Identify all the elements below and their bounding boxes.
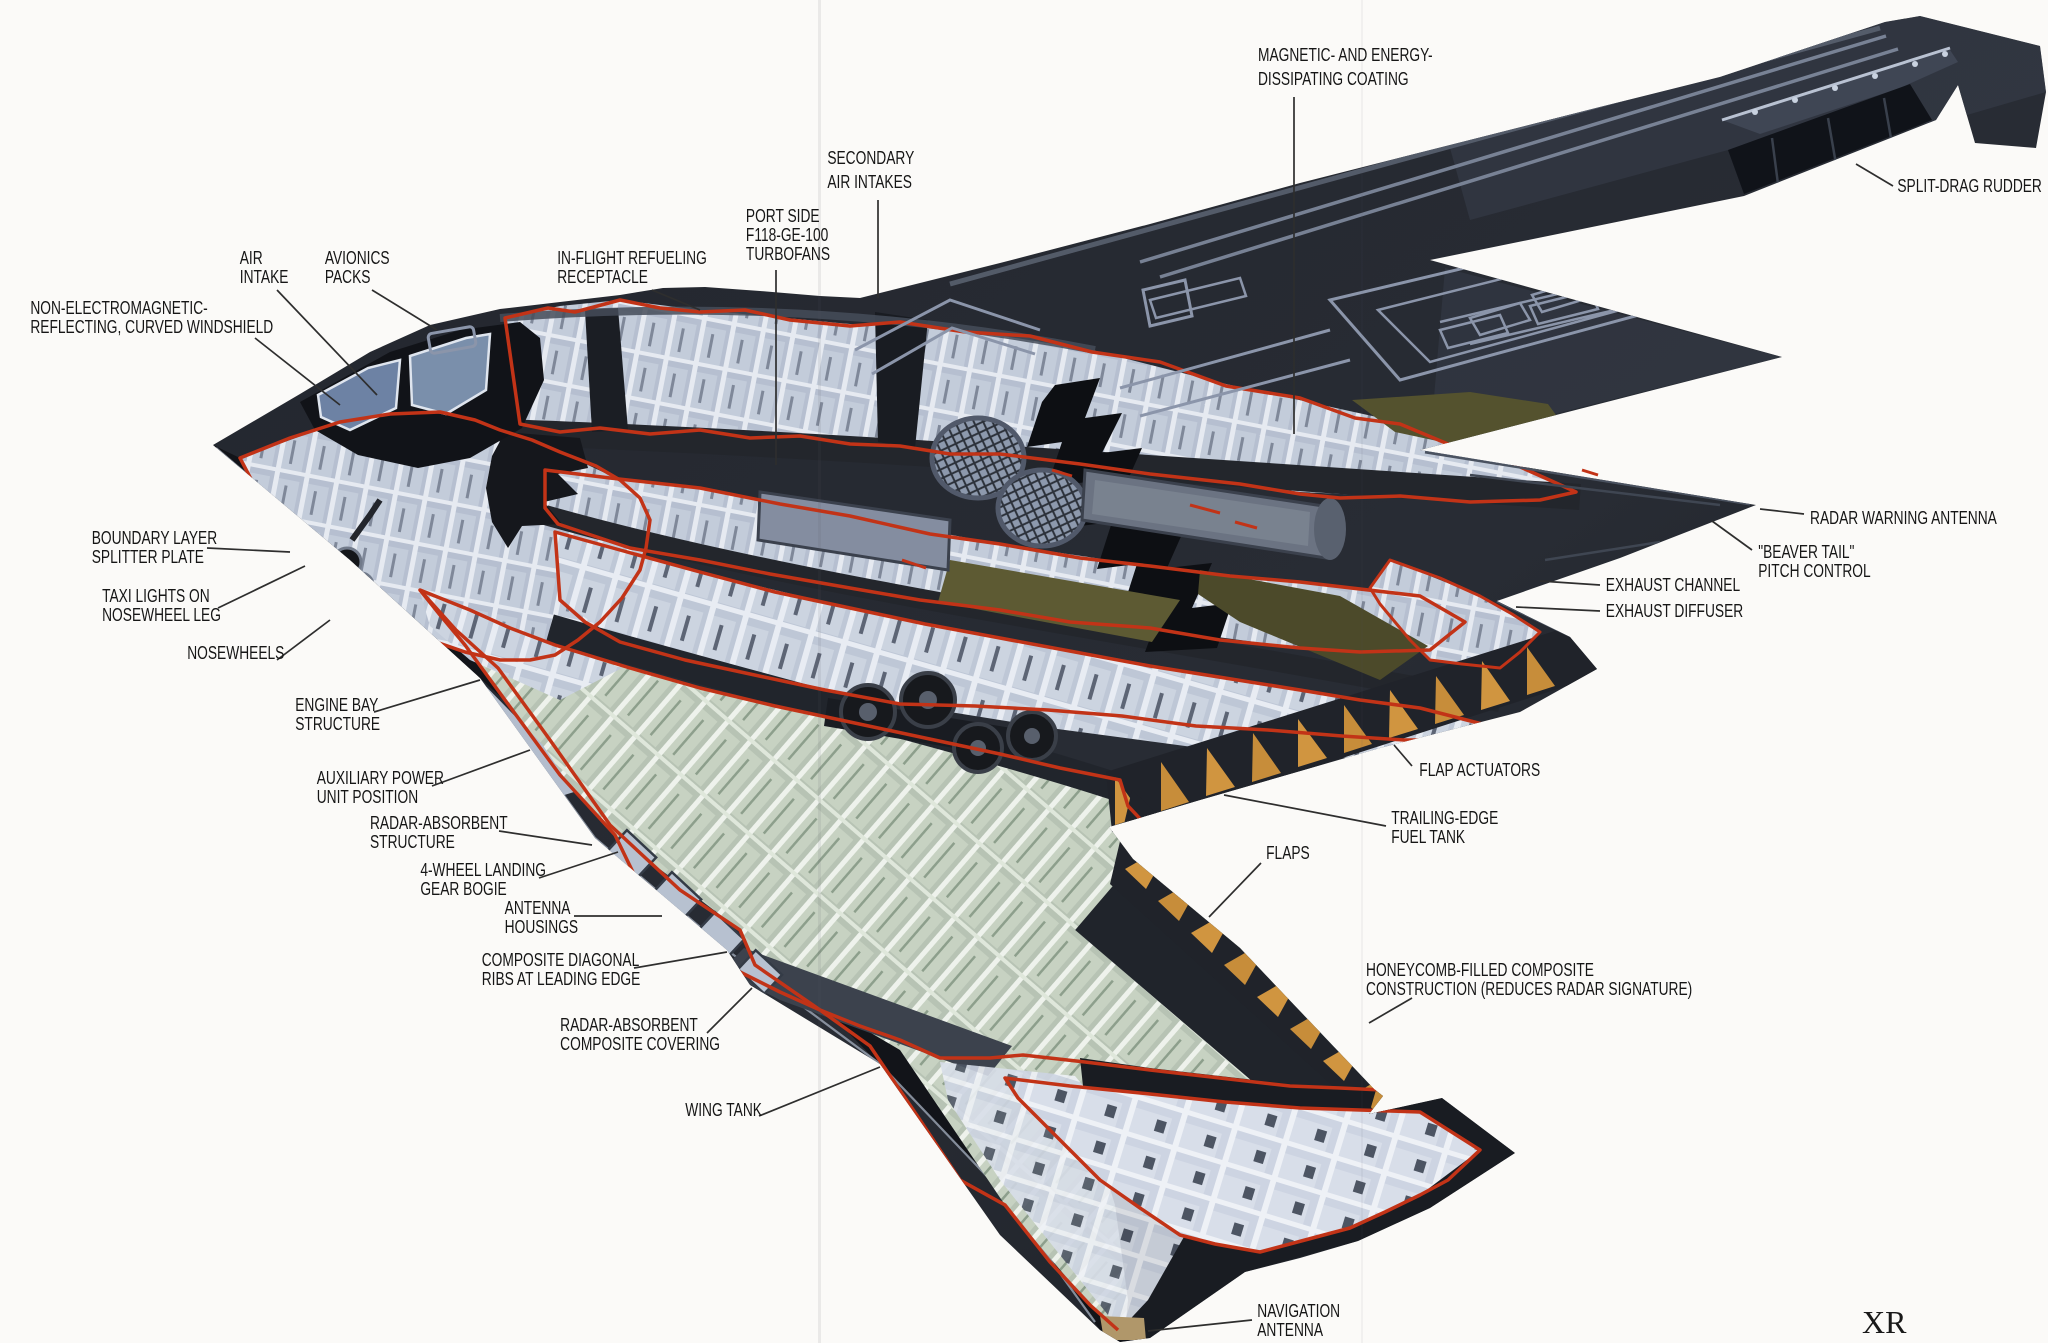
svg-text:UNIT POSITION: UNIT POSITION [317, 787, 418, 807]
svg-text:SECONDARY: SECONDARY [827, 148, 914, 168]
svg-text:RIBS AT LEADING EDGE: RIBS AT LEADING EDGE [482, 969, 641, 989]
svg-text:EXHAUST CHANNEL: EXHAUST CHANNEL [1606, 575, 1740, 595]
svg-text:"BEAVER TAIL": "BEAVER TAIL" [1758, 542, 1854, 562]
svg-text:TAXI LIGHTS ON: TAXI LIGHTS ON [102, 586, 210, 606]
svg-text:CONSTRUCTION (REDUCES RADAR SI: CONSTRUCTION (REDUCES RADAR SIGNATURE) [1366, 979, 1692, 999]
svg-text:EXHAUST DIFFUSER: EXHAUST DIFFUSER [1606, 601, 1744, 621]
svg-text:PORT SIDE: PORT SIDE [746, 206, 820, 226]
svg-text:HONEYCOMB-FILLED COMPOSITE: HONEYCOMB-FILLED COMPOSITE [1366, 960, 1594, 980]
svg-text:4-WHEEL LANDING: 4-WHEEL LANDING [420, 860, 546, 880]
svg-text:PACKS: PACKS [325, 267, 371, 287]
svg-text:SPLIT-DRAG RUDDER: SPLIT-DRAG RUDDER [1897, 176, 2042, 196]
svg-text:XR: XR [1862, 1304, 1907, 1340]
svg-text:NOSEWHEEL LEG: NOSEWHEEL LEG [102, 605, 221, 625]
svg-text:FUEL TANK: FUEL TANK [1391, 827, 1465, 847]
svg-text:REFLECTING, CURVED WINDSHIELD: REFLECTING, CURVED WINDSHIELD [30, 317, 273, 337]
svg-text:WING TANK: WING TANK [685, 1100, 762, 1120]
svg-text:COMPOSITE COVERING: COMPOSITE COVERING [560, 1034, 720, 1054]
svg-text:COMPOSITE DIAGONAL: COMPOSITE DIAGONAL [482, 950, 640, 970]
svg-text:ENGINE BAY: ENGINE BAY [295, 695, 378, 715]
svg-text:FLAP ACTUATORS: FLAP ACTUATORS [1419, 760, 1540, 780]
svg-text:RADAR-ABSORBENT: RADAR-ABSORBENT [560, 1015, 698, 1035]
svg-text:MAGNETIC- AND ENERGY-: MAGNETIC- AND ENERGY- [1258, 45, 1433, 65]
svg-text:AVIONICS: AVIONICS [325, 248, 390, 268]
svg-text:AIR INTAKES: AIR INTAKES [827, 172, 912, 192]
svg-text:BOUNDARY LAYER: BOUNDARY LAYER [92, 528, 218, 548]
svg-text:RADAR-ABSORBENT: RADAR-ABSORBENT [370, 813, 508, 833]
svg-text:NAVIGATION: NAVIGATION [1257, 1301, 1340, 1321]
svg-text:GEAR BOGIE: GEAR BOGIE [420, 879, 506, 899]
svg-text:FLAPS: FLAPS [1266, 843, 1310, 863]
svg-text:INTAKE: INTAKE [240, 267, 289, 287]
svg-text:NOSEWHEELS: NOSEWHEELS [187, 643, 284, 663]
svg-text:PITCH CONTROL: PITCH CONTROL [1758, 561, 1870, 581]
svg-text:SPLITTER PLATE: SPLITTER PLATE [92, 547, 204, 567]
svg-text:STRUCTURE: STRUCTURE [370, 832, 455, 852]
svg-text:DISSIPATING COATING: DISSIPATING COATING [1258, 69, 1409, 89]
svg-text:RECEPTACLE: RECEPTACLE [557, 267, 648, 287]
svg-text:AIR: AIR [240, 248, 263, 268]
svg-text:F118-GE-100: F118-GE-100 [746, 225, 828, 245]
svg-text:RADAR WARNING ANTENNA: RADAR WARNING ANTENNA [1810, 508, 1997, 528]
svg-text:ANTENNA: ANTENNA [505, 898, 571, 918]
svg-text:ANTENNA: ANTENNA [1257, 1320, 1323, 1340]
svg-text:AUXILIARY POWER: AUXILIARY POWER [317, 768, 444, 788]
svg-text:NON-ELECTROMAGNETIC-: NON-ELECTROMAGNETIC- [30, 298, 207, 318]
svg-text:HOUSINGS: HOUSINGS [505, 917, 578, 937]
svg-text:TURBOFANS: TURBOFANS [746, 244, 830, 264]
svg-text:IN-FLIGHT REFUELING: IN-FLIGHT REFUELING [557, 248, 707, 268]
svg-text:TRAILING-EDGE: TRAILING-EDGE [1391, 808, 1498, 828]
svg-text:STRUCTURE: STRUCTURE [295, 714, 380, 734]
